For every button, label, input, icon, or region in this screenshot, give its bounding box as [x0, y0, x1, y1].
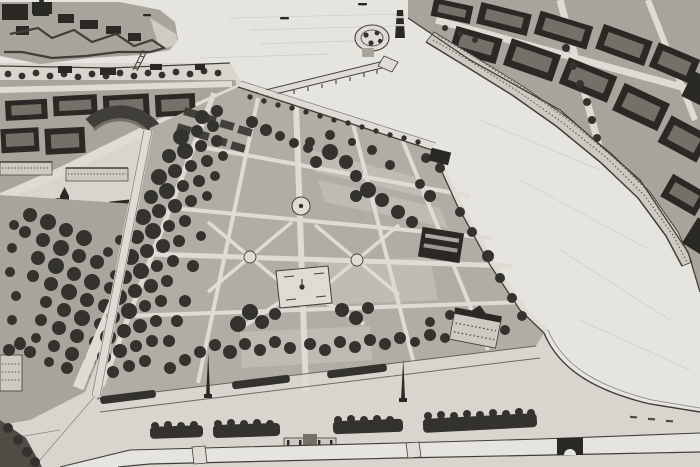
grain-overlay: [0, 0, 700, 467]
birds-eye-view-svg: [0, 0, 700, 467]
engraving-panorama: [0, 0, 700, 467]
